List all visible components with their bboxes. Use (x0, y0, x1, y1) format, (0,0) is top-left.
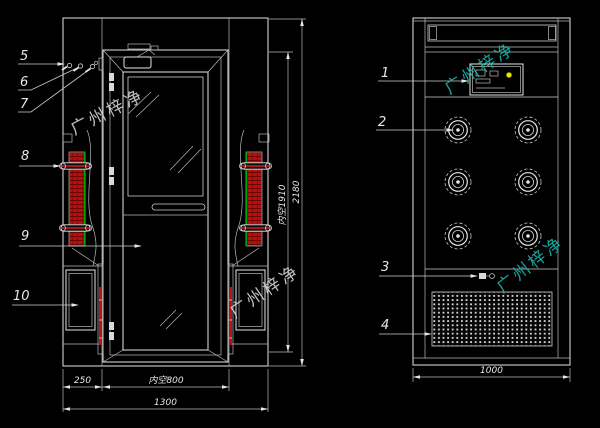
spray-fitting (60, 163, 92, 169)
callout-10-label: 10 (13, 289, 30, 304)
leader-arrow (72, 303, 80, 307)
dimension-depth: 1000 (413, 366, 570, 382)
return-air-grille (432, 292, 552, 346)
callout-5-label: 5 (20, 49, 28, 64)
watermark-text: 广州梓净 (68, 85, 148, 139)
callout-8: 8 (19, 149, 61, 168)
air-shower-drawing: 5 6 7 8 9 (0, 0, 600, 428)
dim-overall-depth: 1000 (480, 366, 503, 376)
callout-7: 7 (18, 69, 90, 112)
panel-reflection-marks (160, 310, 182, 329)
dimension-height: 内空1910 2180 (269, 19, 306, 366)
door-knob-hardware (479, 273, 494, 279)
door-closer (94, 44, 158, 70)
callout-6-label: 6 (20, 75, 28, 90)
hinge (109, 83, 114, 91)
hinge (109, 177, 114, 185)
air-nozzles (445, 117, 541, 249)
callout-6: 6 (18, 68, 77, 90)
nozzle (515, 169, 541, 195)
door-closer-arm (137, 50, 155, 57)
door-leaf (123, 72, 208, 350)
hinge (109, 167, 114, 175)
hinge (109, 332, 114, 340)
power-indicator-light (506, 72, 511, 77)
base-cabinet-left (66, 270, 95, 330)
hinge (109, 73, 114, 81)
leader-arrow (58, 62, 66, 66)
watermark-text: 广州梓净 (441, 39, 519, 99)
dim-overall-height: 2180 (292, 180, 302, 203)
dim-overall-width: 1300 (154, 398, 177, 408)
nozzle (445, 169, 471, 195)
spray-fitting (240, 163, 272, 169)
callout-1-label: 1 (381, 66, 389, 81)
nozzle (445, 223, 471, 249)
jamb-seal-strips (98, 264, 233, 354)
dim-inner-height: 内空1910 (277, 184, 288, 225)
top-plenum (425, 25, 558, 52)
leader-arrow (135, 244, 143, 248)
hinge (109, 322, 114, 330)
door-handle (152, 204, 205, 210)
callout-5: 5 (18, 49, 65, 66)
callout-8-label: 8 (21, 149, 29, 164)
spray-fitting (240, 225, 272, 231)
cad-drawing-canvas: 5 6 7 8 9 (0, 0, 600, 428)
watermark-text: 广州梓净 (493, 233, 568, 298)
front-view: 5 6 7 8 9 (12, 18, 306, 412)
callout-4: 4 (379, 318, 432, 336)
dimension-bottom: 250 内空800 1300 (63, 369, 268, 412)
callout-9-label: 9 (21, 229, 29, 244)
nozzle (515, 223, 541, 249)
dim-inner-width: 内空800 (148, 375, 183, 386)
nozzle (515, 117, 541, 143)
spray-fittings (60, 163, 272, 231)
duct-profile-right (235, 130, 244, 266)
leader-arrow (471, 274, 479, 278)
fastener-details (62, 63, 95, 72)
callout-7-label: 7 (20, 97, 29, 112)
callout-3-label: 3 (381, 260, 389, 275)
watermarks: 广州梓净 广州梓净 广州梓净 广州梓净 (68, 39, 569, 323)
spray-fitting (60, 225, 92, 231)
callout-2-label: 2 (378, 115, 386, 130)
dim-left-section: 250 (74, 376, 91, 386)
leader-arrow (425, 332, 433, 336)
callout-4-label: 4 (381, 318, 389, 333)
callout-2: 2 (376, 115, 454, 132)
